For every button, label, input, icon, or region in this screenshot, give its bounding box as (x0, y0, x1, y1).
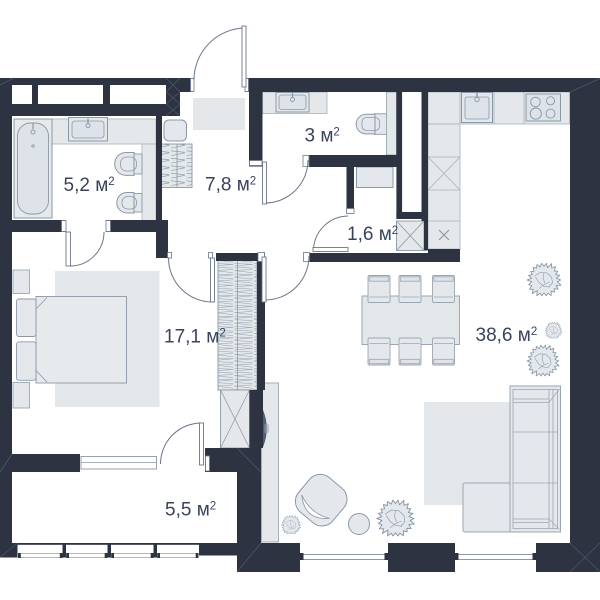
svg-text:17,1 м2: 17,1 м2 (164, 327, 226, 348)
svg-text:5,2 м2: 5,2 м2 (64, 175, 115, 196)
svg-text:5,5 м2: 5,5 м2 (165, 500, 216, 521)
svg-text:38,6 м2: 38,6 м2 (476, 325, 538, 346)
svg-text:1,6 м2: 1,6 м2 (347, 224, 398, 245)
svg-text:7,8 м2: 7,8 м2 (205, 175, 256, 196)
